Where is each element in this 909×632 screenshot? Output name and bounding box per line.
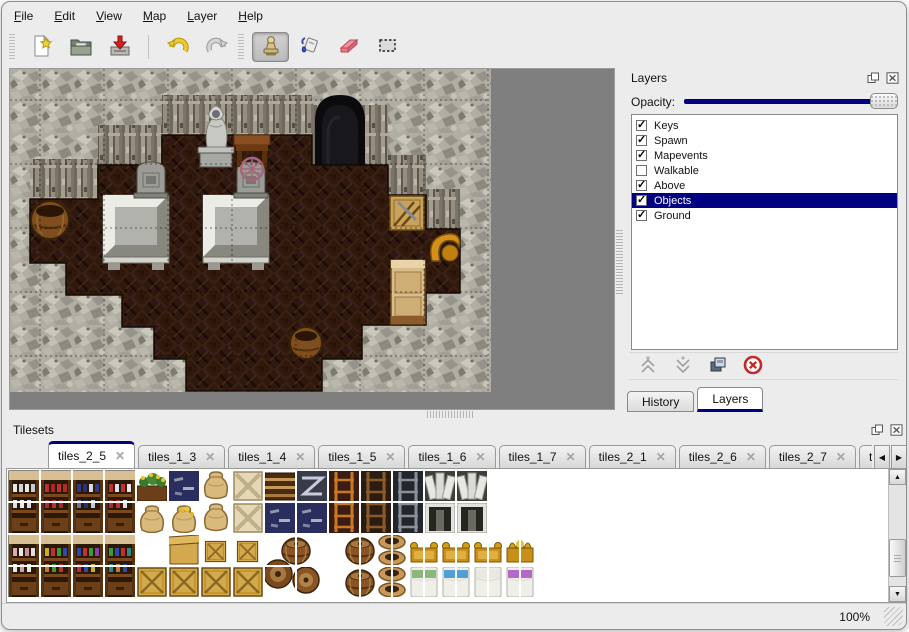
scroll-down-icon[interactable]: ▼ xyxy=(889,586,906,602)
tab-close-icon[interactable]: ✕ xyxy=(115,449,125,463)
tilesets-title: Tilesets xyxy=(6,423,869,437)
tileset-render xyxy=(8,470,552,600)
stamp-tool-button[interactable] xyxy=(252,32,289,62)
delete-icon xyxy=(743,355,763,378)
tab-close-icon[interactable]: ✕ xyxy=(385,450,395,464)
zoom-level: 100% xyxy=(839,610,870,624)
checkbox-unchecked-icon[interactable] xyxy=(636,165,647,176)
layer-actions xyxy=(629,352,898,380)
tilesets-float-button[interactable] xyxy=(869,423,885,437)
move-down-icon xyxy=(673,355,693,378)
move-down-button[interactable] xyxy=(673,356,693,376)
duplicate-icon xyxy=(708,355,728,378)
select-tool-button[interactable] xyxy=(369,32,406,62)
save-icon xyxy=(108,34,132,61)
tileset-tab-label: tiles_1_4 xyxy=(238,450,286,464)
app-window: FileEditViewMapLayerHelp xyxy=(1,1,907,630)
dock-tab-history[interactable]: History xyxy=(627,391,694,412)
layer-row-objects[interactable]: ✓Objects xyxy=(632,193,897,208)
menu-layer[interactable]: Layer xyxy=(187,9,217,23)
tab-close-icon[interactable]: ✕ xyxy=(205,450,215,464)
eraser-tool-button[interactable] xyxy=(330,32,367,62)
tileset-tab-label: tiles_2_6 xyxy=(689,450,737,464)
layer-row-mapevents[interactable]: ✓Mapevents xyxy=(632,148,897,163)
opacity-label: Opacity: xyxy=(631,95,675,109)
tileset-tab-tiles_1_6[interactable]: tiles_1_6✕ xyxy=(408,445,495,469)
tab-scroll-left-icon[interactable]: ◀ xyxy=(874,445,890,469)
tab-close-icon[interactable]: ✕ xyxy=(746,450,756,464)
status-bar: 100% xyxy=(2,603,906,629)
tileset-scrollbar[interactable]: ▲ ▼ xyxy=(888,469,906,602)
tileset-tab-tiles_1_5[interactable]: tiles_1_5✕ xyxy=(318,445,405,469)
tab-close-icon[interactable]: ✕ xyxy=(656,450,666,464)
tab-close-icon[interactable]: ✕ xyxy=(295,450,305,464)
new-file-button[interactable] xyxy=(23,32,60,62)
layer-name: Keys xyxy=(654,120,678,132)
tileset-tab-label: tiles_1_3 xyxy=(148,450,196,464)
layers-panel: Layers Opacity: ✓Keys✓Spawn✓MapeventsWal… xyxy=(624,66,905,412)
tileset-tabbar: tiles_2_5✕tiles_1_3✕tiles_1_4✕tiles_1_5✕… xyxy=(48,441,872,469)
layers-float-button[interactable] xyxy=(865,71,881,85)
checkbox-checked-icon[interactable]: ✓ xyxy=(636,135,647,146)
tab-close-icon[interactable]: ✕ xyxy=(475,450,485,464)
open-folder-icon xyxy=(69,34,93,61)
layer-name: Walkable xyxy=(654,165,699,177)
toolbar xyxy=(2,29,906,65)
eraser-tool-icon xyxy=(337,34,361,61)
checkbox-checked-icon[interactable]: ✓ xyxy=(636,150,647,161)
toolbar-grip[interactable] xyxy=(9,34,15,60)
tileset-tab-label: tiles_1_5 xyxy=(328,450,376,464)
undo-icon xyxy=(166,34,190,61)
layers-close-button[interactable] xyxy=(884,71,900,85)
toolbar-separator xyxy=(148,35,149,59)
menu-bar: FileEditViewMapLayerHelp xyxy=(2,2,906,29)
tilesets-close-button[interactable] xyxy=(888,423,904,437)
resize-grip-icon[interactable] xyxy=(884,607,903,626)
stamp-tool-icon xyxy=(259,34,283,61)
layer-name: Above xyxy=(654,180,685,192)
tileset-tab-tiles_2_5[interactable]: tiles_2_5✕ xyxy=(48,441,135,469)
menu-view[interactable]: View xyxy=(96,9,122,23)
move-up-icon xyxy=(638,355,658,378)
opacity-slider-track[interactable] xyxy=(684,99,896,104)
dock-tabs: HistoryLayers xyxy=(627,387,763,412)
dock-tab-layers[interactable]: Layers xyxy=(697,387,763,412)
tileset-view[interactable]: ▲ ▼ xyxy=(6,468,907,603)
checkbox-checked-icon[interactable]: ✓ xyxy=(636,180,647,191)
map-canvas[interactable] xyxy=(9,68,615,410)
layers-panel-title: Layers xyxy=(624,71,865,85)
tileset-tab-tiles_1_4[interactable]: tiles_1_4✕ xyxy=(228,445,315,469)
tileset-tab-tiles_2_6[interactable]: tiles_2_6✕ xyxy=(679,445,766,469)
save-button[interactable] xyxy=(101,32,138,62)
opacity-slider-handle[interactable] xyxy=(870,93,898,109)
tileset-tab-label: tiles_1_6 xyxy=(418,450,466,464)
tileset-tab-label: tiles_ xyxy=(869,450,872,464)
delete-button[interactable] xyxy=(743,356,763,376)
tileset-tab-scroll: ◀ ▶ xyxy=(874,445,907,469)
tileset-tab-label: tiles_2_7 xyxy=(779,450,827,464)
layer-row-ground[interactable]: ✓Ground xyxy=(632,208,897,223)
layer-name: Mapevents xyxy=(654,150,708,162)
layers-panel-titlebar: Layers xyxy=(624,69,903,86)
checkbox-checked-icon[interactable]: ✓ xyxy=(636,120,647,131)
layer-name: Ground xyxy=(654,210,691,222)
undo-button[interactable] xyxy=(159,32,196,62)
menu-map[interactable]: Map xyxy=(143,9,166,23)
select-tool-icon xyxy=(376,34,400,61)
scroll-up-icon[interactable]: ▲ xyxy=(889,469,906,485)
map-layers-splitter[interactable] xyxy=(616,230,623,296)
open-folder-button[interactable] xyxy=(62,32,99,62)
fill-tool-button[interactable] xyxy=(291,32,328,62)
tileset-tab-tiles_2_7[interactable]: tiles_2_7✕ xyxy=(769,445,856,469)
move-up-button[interactable] xyxy=(638,356,658,376)
layer-row-walkable[interactable]: Walkable xyxy=(632,163,897,178)
tilesets-panel: Tilesets tiles_2_5✕tiles_1_3✕tiles_1_4✕t… xyxy=(6,419,907,606)
tab-close-icon[interactable]: ✕ xyxy=(836,450,846,464)
new-file-icon xyxy=(30,34,54,61)
tileset-tab-tiles_1_3[interactable]: tiles_1_3✕ xyxy=(138,445,225,469)
opacity-slider[interactable] xyxy=(684,93,898,110)
toolbar-grip[interactable] xyxy=(238,34,244,60)
layer-name: Objects xyxy=(654,195,691,207)
layer-name: Spawn xyxy=(654,135,688,147)
map-tilesets-splitter[interactable] xyxy=(427,411,473,418)
tileset-tab-label: tiles_1_7 xyxy=(509,450,557,464)
tilesets-titlebar: Tilesets xyxy=(6,421,907,438)
checkbox-checked-icon[interactable]: ✓ xyxy=(636,195,647,206)
tileset-tab-label: tiles_2_1 xyxy=(599,450,647,464)
tab-close-icon[interactable]: ✕ xyxy=(566,450,576,464)
redo-icon xyxy=(205,34,229,61)
checkbox-checked-icon[interactable]: ✓ xyxy=(636,210,647,221)
redo-button[interactable] xyxy=(198,32,235,62)
layer-list: ✓Keys✓Spawn✓MapeventsWalkable✓Above✓Obje… xyxy=(631,114,898,350)
menu-help[interactable]: Help xyxy=(238,9,263,23)
layer-row-keys[interactable]: ✓Keys xyxy=(632,118,897,133)
tileset-tab-tiles[interactable]: tiles_✕ xyxy=(859,445,872,469)
layer-row-above[interactable]: ✓Above xyxy=(632,178,897,193)
fill-tool-icon xyxy=(298,34,322,61)
opacity-row: Opacity: xyxy=(631,93,898,110)
duplicate-button[interactable] xyxy=(708,356,728,376)
menu-file[interactable]: File xyxy=(14,9,33,23)
layer-row-spawn[interactable]: ✓Spawn xyxy=(632,133,897,148)
tab-scroll-right-icon[interactable]: ▶ xyxy=(891,445,907,469)
scrollbar-thumb[interactable] xyxy=(889,539,906,577)
tileset-tab-tiles_2_1[interactable]: tiles_2_1✕ xyxy=(589,445,676,469)
tileset-tab-label: tiles_2_5 xyxy=(58,449,106,463)
tileset-tab-tiles_1_7[interactable]: tiles_1_7✕ xyxy=(499,445,586,469)
map-render xyxy=(10,69,491,392)
menu-edit[interactable]: Edit xyxy=(54,9,75,23)
